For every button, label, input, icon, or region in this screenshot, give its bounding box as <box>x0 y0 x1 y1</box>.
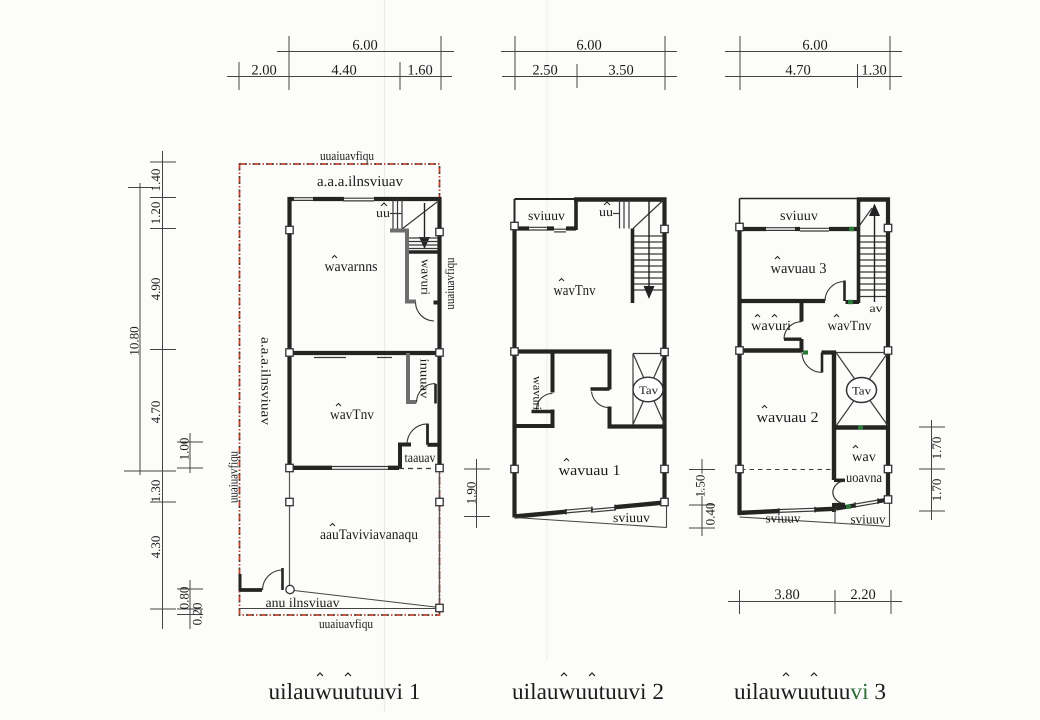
svg-text:wavuau 2: wavuau 2 <box>757 410 819 426</box>
svg-text:uilauwuutuuvi 1: uilauwuutuuvi 1 <box>269 679 421 704</box>
svg-text:wavarnns: wavarnns <box>325 259 378 275</box>
svg-text:6.00: 6.00 <box>802 38 827 54</box>
svg-text:uu: uu <box>376 206 391 220</box>
svg-text:wavuau 1: wavuau 1 <box>559 463 621 479</box>
svg-text:wavuri: wavuri <box>751 319 791 334</box>
svg-text:uuaiuavfiqu: uuaiuavfiqu <box>320 148 374 163</box>
svg-text:1.60: 1.60 <box>407 63 432 79</box>
svg-text:4.70: 4.70 <box>148 401 163 424</box>
svg-text:uuaiuavfiqu: uuaiuavfiqu <box>442 257 457 309</box>
svg-text:3.80: 3.80 <box>774 587 799 603</box>
svg-text:0.20: 0.20 <box>190 603 205 626</box>
svg-text:wav: wav <box>852 450 876 465</box>
svg-text:1.20: 1.20 <box>148 202 163 225</box>
svg-text:10.80: 10.80 <box>127 326 142 355</box>
svg-text:4.40: 4.40 <box>331 63 356 79</box>
svg-text:sviuuv: sviuuv <box>528 208 565 223</box>
svg-text:0.40: 0.40 <box>703 503 718 526</box>
svg-text:4.30: 4.30 <box>148 536 163 559</box>
svg-text:6.00: 6.00 <box>576 38 601 54</box>
svg-text:1.90: 1.90 <box>464 482 479 505</box>
svg-text:1.00: 1.00 <box>177 438 192 461</box>
svg-text:2.20: 2.20 <box>850 587 875 603</box>
svg-text:sviuuv: sviuuv <box>613 510 650 525</box>
svg-text:1.30: 1.30 <box>148 480 163 503</box>
svg-text:wavTnv: wavTnv <box>330 407 375 423</box>
svg-text:taauav: taauav <box>405 450 436 465</box>
svg-text:aauTaviviavanaqu: aauTaviviavanaqu <box>320 527 418 543</box>
svg-text:wavuau 3: wavuau 3 <box>771 261 827 277</box>
svg-text:3.50: 3.50 <box>608 63 633 79</box>
svg-text:wavuri: wavuri <box>531 376 545 411</box>
svg-text:inuuav: inuuav <box>418 359 432 400</box>
svg-text:4.90: 4.90 <box>148 278 163 301</box>
svg-text:6.00: 6.00 <box>352 38 377 54</box>
svg-text:sviuuv: sviuuv <box>766 511 802 526</box>
svg-text:Tav: Tav <box>639 385 658 397</box>
svg-text:2.50: 2.50 <box>532 63 557 79</box>
svg-text:anu ilnsviuav: anu ilnsviuav <box>266 595 340 610</box>
svg-text:uuaiuavfiqu: uuaiuavfiqu <box>319 616 373 631</box>
svg-text:sviuuv: sviuuv <box>780 209 818 224</box>
svg-text:sviuuv: sviuuv <box>851 512 887 527</box>
svg-text:a.a.a.ilnsviuav: a.a.a.ilnsviuav <box>317 174 403 190</box>
svg-text:a.a.a.ilnsviuav: a.a.a.ilnsviuav <box>259 337 274 425</box>
svg-text:1.40: 1.40 <box>148 169 163 192</box>
svg-text:wavuri: wavuri <box>419 259 433 296</box>
svg-text:uuaiuavfiqu: uuaiuavfiqu <box>226 451 241 503</box>
svg-text:1.30: 1.30 <box>861 63 886 79</box>
svg-text:wavTnv: wavTnv <box>554 283 596 299</box>
svg-text:uilauwuutuuvi 2: uilauwuutuuvi 2 <box>512 679 664 704</box>
svg-text:4.70: 4.70 <box>785 63 810 79</box>
svg-text:uilauwuutuuvi 3: uilauwuutuuvi 3 <box>734 679 886 704</box>
svg-text:1.70: 1.70 <box>929 479 944 502</box>
svg-text:1.70: 1.70 <box>929 437 944 460</box>
svg-text:Tav: Tav <box>852 386 871 398</box>
svg-text:uoavna: uoavna <box>846 471 883 486</box>
svg-text:1.50: 1.50 <box>693 475 708 498</box>
svg-text:wavTnv: wavTnv <box>828 319 872 334</box>
svg-text:av: av <box>870 303 883 315</box>
svg-text:2.00: 2.00 <box>251 63 276 79</box>
svg-text:uu: uu <box>599 205 614 219</box>
